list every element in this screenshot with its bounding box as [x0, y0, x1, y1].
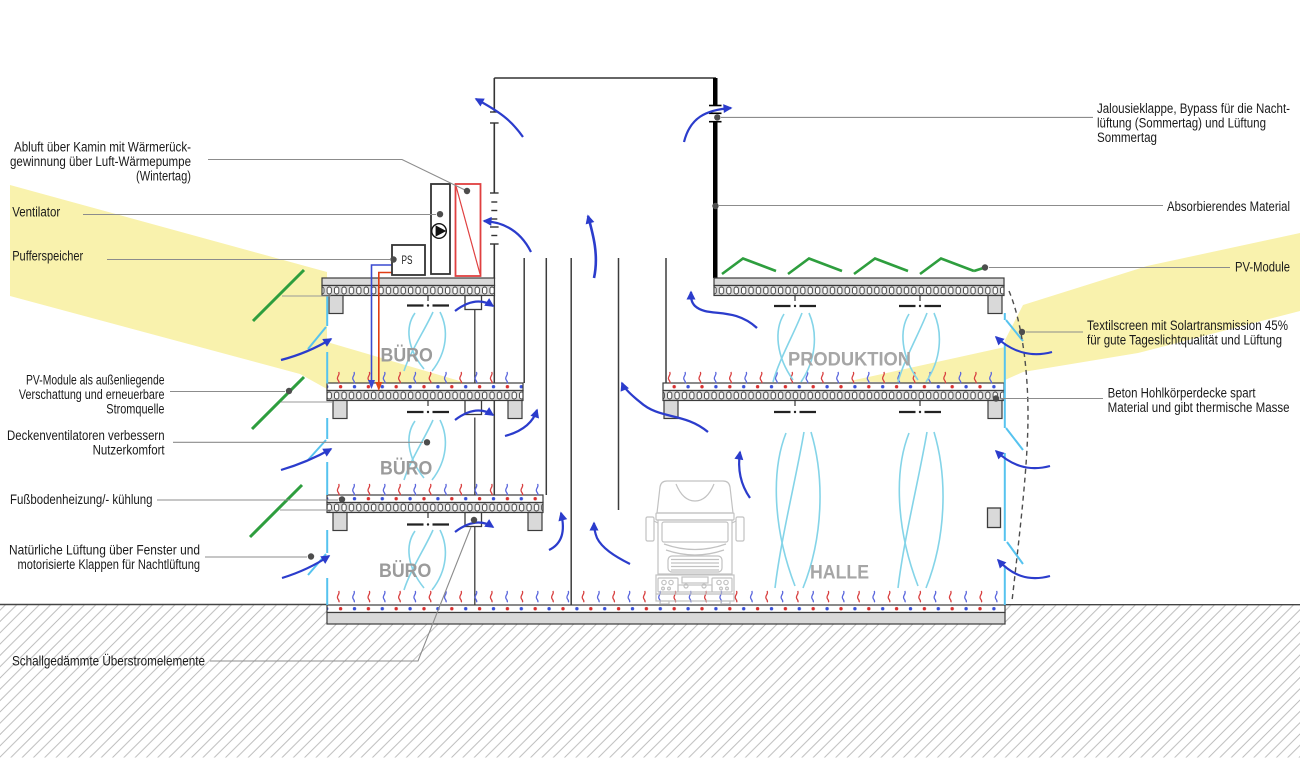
svg-text:Jalousieklappe, Bypass für die: Jalousieklappe, Bypass für die Nacht-	[1097, 101, 1290, 116]
svg-text:für gute Tageslichtqualität un: für gute Tageslichtqualität und Lüftung	[1087, 333, 1282, 348]
svg-text:Sommertag: Sommertag	[1097, 130, 1157, 145]
svg-text:Nutzerkomfort: Nutzerkomfort	[93, 443, 165, 458]
svg-text:Deckenventilatoren verbessern: Deckenventilatoren verbessern	[7, 428, 165, 443]
svg-text:(Wintertag): (Wintertag)	[136, 169, 191, 184]
svg-text:Abluft über Kamin mit Wärmerüc: Abluft über Kamin mit Wärmerück-	[14, 140, 191, 155]
svg-text:motorisierte Klappen für Nacht: motorisierte Klappen für Nachtlüftung	[18, 557, 201, 572]
svg-text:BÜRO: BÜRO	[380, 457, 432, 480]
svg-text:PV-Module: PV-Module	[1235, 260, 1290, 275]
svg-text:PS: PS	[402, 255, 413, 267]
svg-text:BÜRO: BÜRO	[381, 344, 433, 367]
svg-text:Material und gibt thermische M: Material und gibt thermische Masse	[1108, 400, 1290, 415]
svg-text:Pufferspeicher: Pufferspeicher	[12, 248, 83, 263]
svg-text:Textilscreen mit Solartransmis: Textilscreen mit Solartransmission 45%	[1087, 318, 1288, 333]
svg-text:lüftung (Sommertag) und Lüftun: lüftung (Sommertag) und Lüftung	[1097, 115, 1266, 130]
svg-text:HALLE: HALLE	[810, 562, 869, 584]
svg-text:PRODUKTION: PRODUKTION	[788, 349, 911, 371]
svg-text:PV-Module als außenliegende: PV-Module als außenliegende	[26, 373, 165, 388]
svg-text:Beton Hohlkörperdecke spart: Beton Hohlkörperdecke spart	[1108, 385, 1256, 400]
svg-text:BÜRO: BÜRO	[379, 559, 431, 582]
svg-text:Verschattung und erneuerbare: Verschattung und erneuerbare	[19, 387, 165, 402]
svg-text:Ventilator: Ventilator	[12, 205, 60, 220]
svg-text:Fußbodenheizung/- kühlung: Fußbodenheizung/- kühlung	[10, 492, 153, 507]
svg-text:Absorbierendes Material: Absorbierendes Material	[1167, 199, 1290, 214]
svg-text:Stromquelle: Stromquelle	[106, 402, 164, 417]
svg-text:Schallgedämmte Überstromelemen: Schallgedämmte Überstromelemente	[12, 654, 205, 669]
svg-text:Natürliche Lüftung über Fenste: Natürliche Lüftung über Fenster und	[9, 543, 200, 558]
svg-text:gewinnung über Luft-Wärmepumpe: gewinnung über Luft-Wärmepumpe	[10, 154, 191, 169]
